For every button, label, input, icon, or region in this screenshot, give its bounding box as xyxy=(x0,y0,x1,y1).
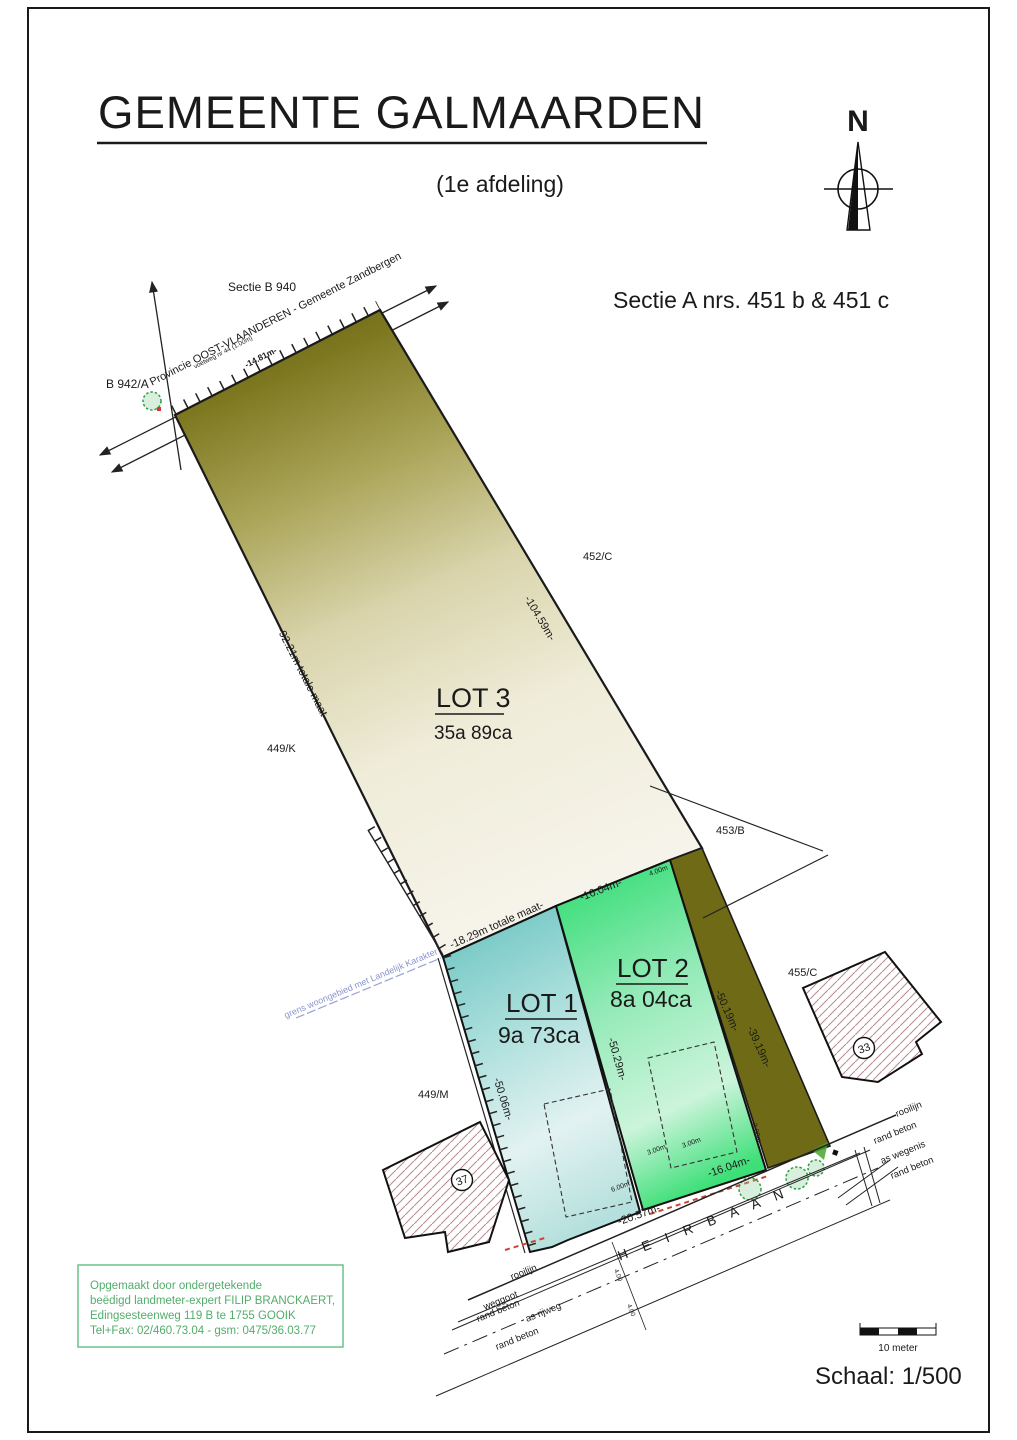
label-449k: 449/K xyxy=(267,743,296,755)
lot2-area: 8a 04ca xyxy=(610,986,692,1012)
scale-bar: 10 meter xyxy=(860,1323,936,1354)
lot3-parcel xyxy=(175,310,702,957)
dim-road-4a: 4.00 xyxy=(612,1268,623,1283)
scale-text: Schaal: 1/500 xyxy=(815,1363,962,1390)
boundary-marker-red xyxy=(157,407,161,411)
plan-canvas: GEMEENTE GALMAARDEN (1e afdeling) Sectie… xyxy=(0,0,1017,1440)
lot2-name: LOT 2 xyxy=(617,953,689,983)
building-33: 33 xyxy=(803,952,941,1082)
zoning-boundary-line xyxy=(296,958,441,1018)
plan-sheet: GEMEENTE GALMAARDEN (1e afdeling) Sectie… xyxy=(0,0,1017,1440)
dim-road-4b: 4.00 xyxy=(625,1303,636,1318)
road-label-asrijweg: as rijweg xyxy=(524,1301,563,1325)
label-449m: 449/M xyxy=(418,1089,449,1101)
lot1-area: 9a 73ca xyxy=(498,1022,580,1048)
surveyor-line4: Tel+Fax: 02/460.73.04 - gsm: 0475/36.03.… xyxy=(90,1325,316,1337)
zoning-boundary-note: grens woongebied met Landelijk Karakter xyxy=(283,946,439,1020)
surveyor-line2: beëdigd landmeter-expert FILIP BRANCKAER… xyxy=(90,1295,335,1307)
section-title: Sectie A nrs. 451 b & 451 c xyxy=(613,287,889,313)
label-b942a: B 942/A xyxy=(106,377,149,391)
label-455c: 455/C xyxy=(788,967,817,979)
north-label: N xyxy=(847,105,869,138)
lot3-area: 35a 89ca xyxy=(434,723,513,744)
road-label-rooilijn-right: rooilijn xyxy=(894,1099,924,1119)
road-labels-right: rooilijn rand beton as wegenis rand beto… xyxy=(872,1099,935,1181)
lot3-name: LOT 3 xyxy=(436,683,511,713)
lot1-name: LOT 1 xyxy=(506,988,578,1018)
road-labels-left: rooilijn weggoot rand beton as rijweg ra… xyxy=(475,1262,563,1352)
north-arrow-icon: N xyxy=(824,105,893,230)
label-453b: 453/B xyxy=(716,825,745,837)
scale-bar-label: 10 meter xyxy=(878,1343,918,1354)
label-sectie-b940: Sectie B 940 xyxy=(228,280,296,294)
boundary-marker-square xyxy=(832,1149,838,1155)
building-37: 37 xyxy=(383,1122,509,1252)
surveyor-line3: Edingsesteenweg 119 B te 1755 GOOIK xyxy=(90,1310,296,1322)
surveyor-line1: Opgemaakt door ondergetekende xyxy=(90,1280,262,1292)
road-label-randbeton-left2: rand beton xyxy=(494,1326,540,1353)
road-label-rooilijn-left: rooilijn xyxy=(509,1262,539,1282)
label-452c: 452/C xyxy=(583,551,612,563)
surveyor-box: Opgemaakt door ondergetekende beëdigd la… xyxy=(78,1265,343,1347)
page-subtitle: (1e afdeling) xyxy=(436,171,564,197)
page-title: GEMEENTE GALMAARDEN xyxy=(98,87,705,138)
